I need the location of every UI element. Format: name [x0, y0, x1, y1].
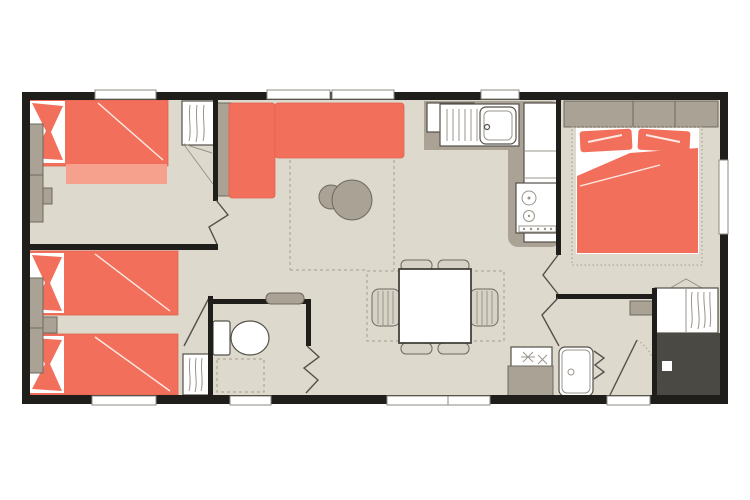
outer-wall-left [22, 92, 30, 404]
wall-wc-right [306, 304, 311, 346]
chair [372, 289, 400, 326]
wall-bedroom1-living [213, 100, 218, 201]
dining-table [399, 269, 471, 343]
toilet-tank [213, 321, 230, 355]
corner-sofa-seat [275, 103, 404, 158]
sink-drain [485, 125, 490, 130]
toilet-bowl [231, 321, 269, 355]
window [92, 396, 156, 405]
coffee-table-large [332, 180, 372, 220]
outer-wall-right [720, 92, 728, 404]
nightstand [43, 317, 57, 333]
window [332, 90, 394, 99]
shower [559, 347, 593, 396]
pillow [580, 129, 633, 153]
hanging-wardrobe [183, 354, 211, 395]
chair [470, 289, 498, 326]
window [719, 160, 728, 234]
wall-master-bottom [556, 294, 655, 299]
entrance-threshold [607, 396, 650, 405]
hall-shelf [630, 301, 654, 315]
chair [401, 343, 432, 354]
window [387, 396, 490, 405]
window [267, 90, 330, 99]
corner-sofa-chaise [229, 103, 275, 198]
wc-shelf [266, 293, 304, 304]
wall-entrance-left [652, 288, 657, 395]
chair [438, 343, 469, 354]
wardrobe-knob [43, 188, 52, 204]
window [95, 90, 156, 99]
floorplan-drawing [0, 0, 750, 500]
burner-center [528, 197, 531, 200]
vanity-cabinet [508, 366, 553, 396]
burner-center [528, 215, 530, 217]
pillow [637, 129, 690, 153]
floorplan-canvas [0, 0, 750, 500]
headboard-cabinet [564, 101, 718, 127]
locker-hatch [662, 361, 672, 371]
wall-kitchen-master [556, 100, 561, 255]
window [230, 396, 271, 405]
bed-footer-blanket [66, 164, 167, 184]
wall-bedroom2-wc [208, 296, 213, 395]
window [481, 90, 519, 99]
hanging-wardrobe [182, 101, 214, 145]
wall-bedroom1-bedroom2 [30, 244, 218, 250]
